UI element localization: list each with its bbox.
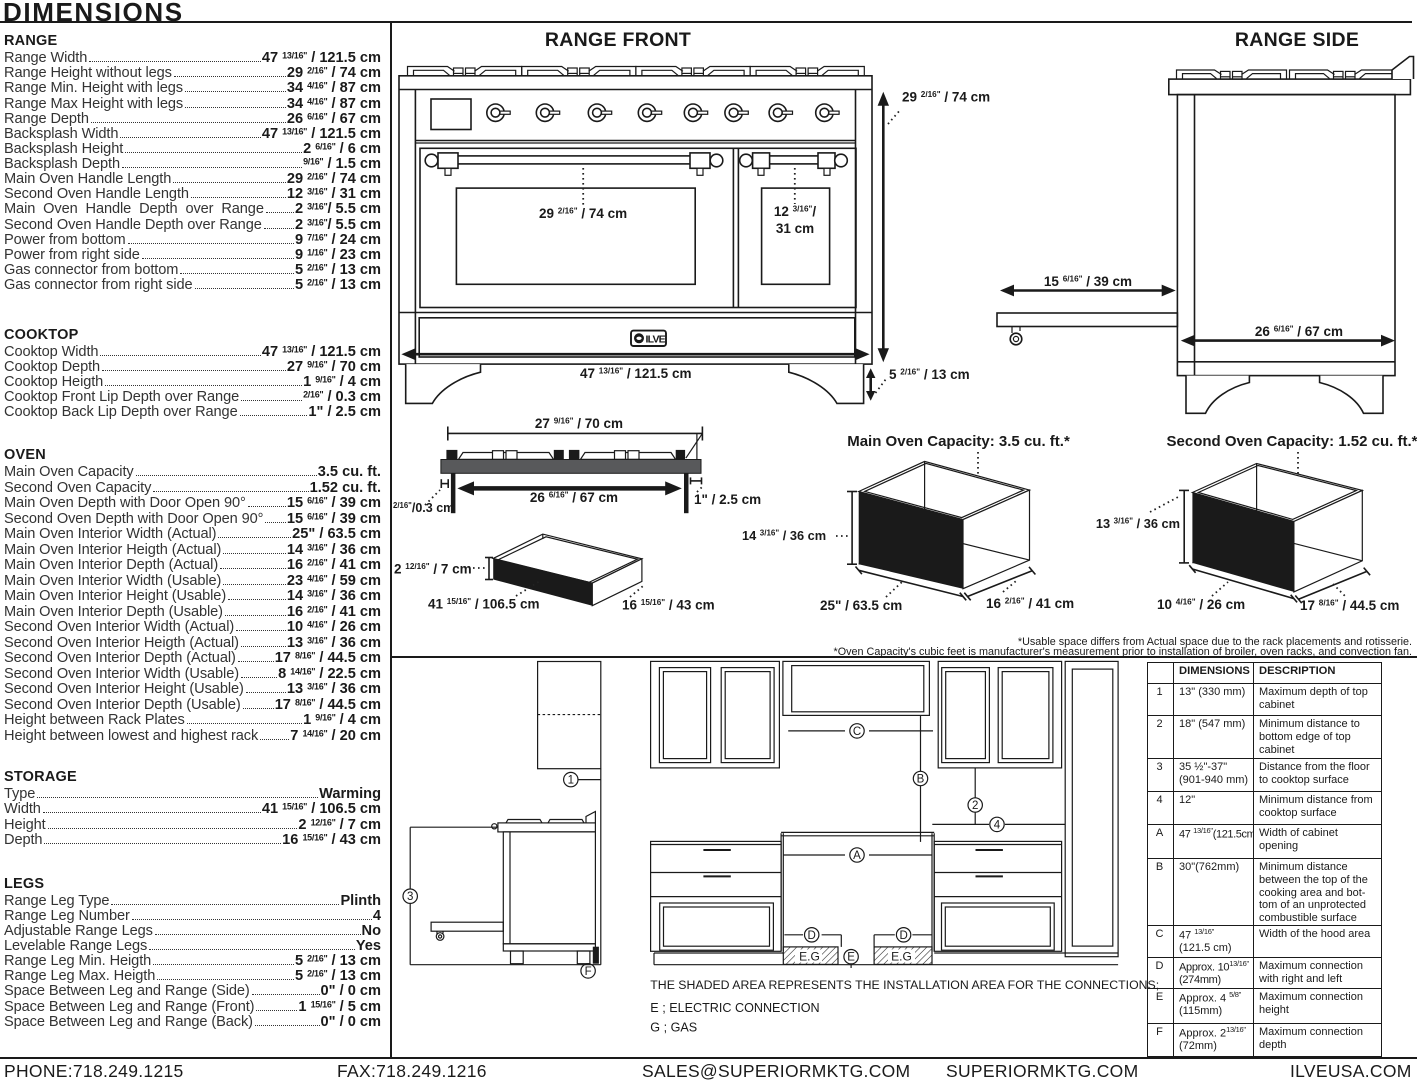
svg-text:16 2/16" / 41 cm: 16 2/16" / 41 cm [986, 596, 1074, 611]
svg-text:D: D [808, 930, 816, 942]
svg-text:E: E [847, 952, 855, 964]
svg-text:31 cm: 31 cm [776, 221, 814, 236]
svg-text:25" / 63.5 cm: 25" / 63.5 cm [820, 598, 902, 613]
svg-text:2 12/16" / 7 cm: 2 12/16" / 7 cm [394, 562, 472, 577]
svg-text:10 4/16" / 26 cm: 10 4/16" / 26 cm [1157, 597, 1245, 612]
svg-text:29 2/16" / 74 cm: 29 2/16" / 74 cm [539, 206, 627, 221]
svg-text:15 6/16" / 39 cm: 15 6/16" / 39 cm [1044, 274, 1132, 289]
svg-text:1: 1 [568, 775, 574, 787]
svg-text:2/16"/0.3 cm: 2/16"/0.3 cm [393, 501, 454, 515]
svg-text:29 2/16" / 74 cm: 29 2/16" / 74 cm [902, 90, 990, 105]
svg-text:E.G: E.G [799, 950, 820, 964]
svg-text:3: 3 [407, 891, 413, 903]
svg-text:13 3/16" / 36 cm: 13 3/16" / 36 cm [1096, 516, 1180, 531]
svg-text:F: F [585, 966, 592, 978]
svg-text:ILVE: ILVE [646, 334, 666, 346]
svg-text:E ; ELECTRIC CONNECTION: E ; ELECTRIC CONNECTION [650, 1001, 819, 1015]
svg-text:Second Oven Capacity: 1.52 cu.: Second Oven Capacity: 1.52 cu. ft.* [1167, 433, 1417, 450]
svg-text:D: D [899, 930, 907, 942]
svg-text:Main Oven Capacity: 3.5 cu. ft: Main Oven Capacity: 3.5 cu. ft.* [847, 433, 1070, 450]
svg-text:B: B [917, 774, 925, 786]
svg-text:E.G: E.G [891, 950, 912, 964]
svg-text:5 2/16" / 13 cm: 5 2/16" / 13 cm [889, 367, 970, 382]
svg-text:*Oven Capacity's cubic feet is: *Oven Capacity's cubic feet is manufactu… [834, 646, 1412, 658]
svg-text:41 15/16" / 106.5 cm: 41 15/16" / 106.5 cm [428, 597, 539, 612]
svg-text:17 8/16" / 44.5 cm: 17 8/16" / 44.5 cm [1300, 598, 1399, 613]
svg-text:27 9/16" / 70 cm: 27 9/16" / 70 cm [535, 416, 623, 431]
svg-text:THE SHADED AREA REPRESENTS THE: THE SHADED AREA REPRESENTS THE INSTALLAT… [650, 978, 1159, 992]
svg-text:RANGE SIDE: RANGE SIDE [1235, 29, 1359, 51]
svg-text:14 3/16" / 36 cm: 14 3/16" / 36 cm [742, 528, 826, 543]
svg-text:12 3/16"/: 12 3/16"/ [774, 204, 817, 219]
svg-text:RANGE FRONT: RANGE FRONT [545, 29, 691, 51]
svg-text:47 13/16" / 121.5 cm: 47 13/16" / 121.5 cm [580, 366, 691, 381]
svg-text:4: 4 [994, 819, 1001, 831]
svg-text:26 6/16" / 67 cm: 26 6/16" / 67 cm [1255, 324, 1343, 339]
svg-text:16 15/16" / 43 cm: 16 15/16" / 43 cm [622, 598, 715, 613]
svg-text:26 6/16" / 67 cm: 26 6/16" / 67 cm [530, 490, 618, 505]
svg-text:1" / 2.5 cm: 1" / 2.5 cm [694, 492, 761, 507]
svg-text:G ; GAS: G ; GAS [650, 1021, 697, 1035]
svg-text:2: 2 [972, 800, 978, 812]
svg-text:A: A [853, 850, 861, 862]
svg-text:C: C [853, 726, 861, 738]
